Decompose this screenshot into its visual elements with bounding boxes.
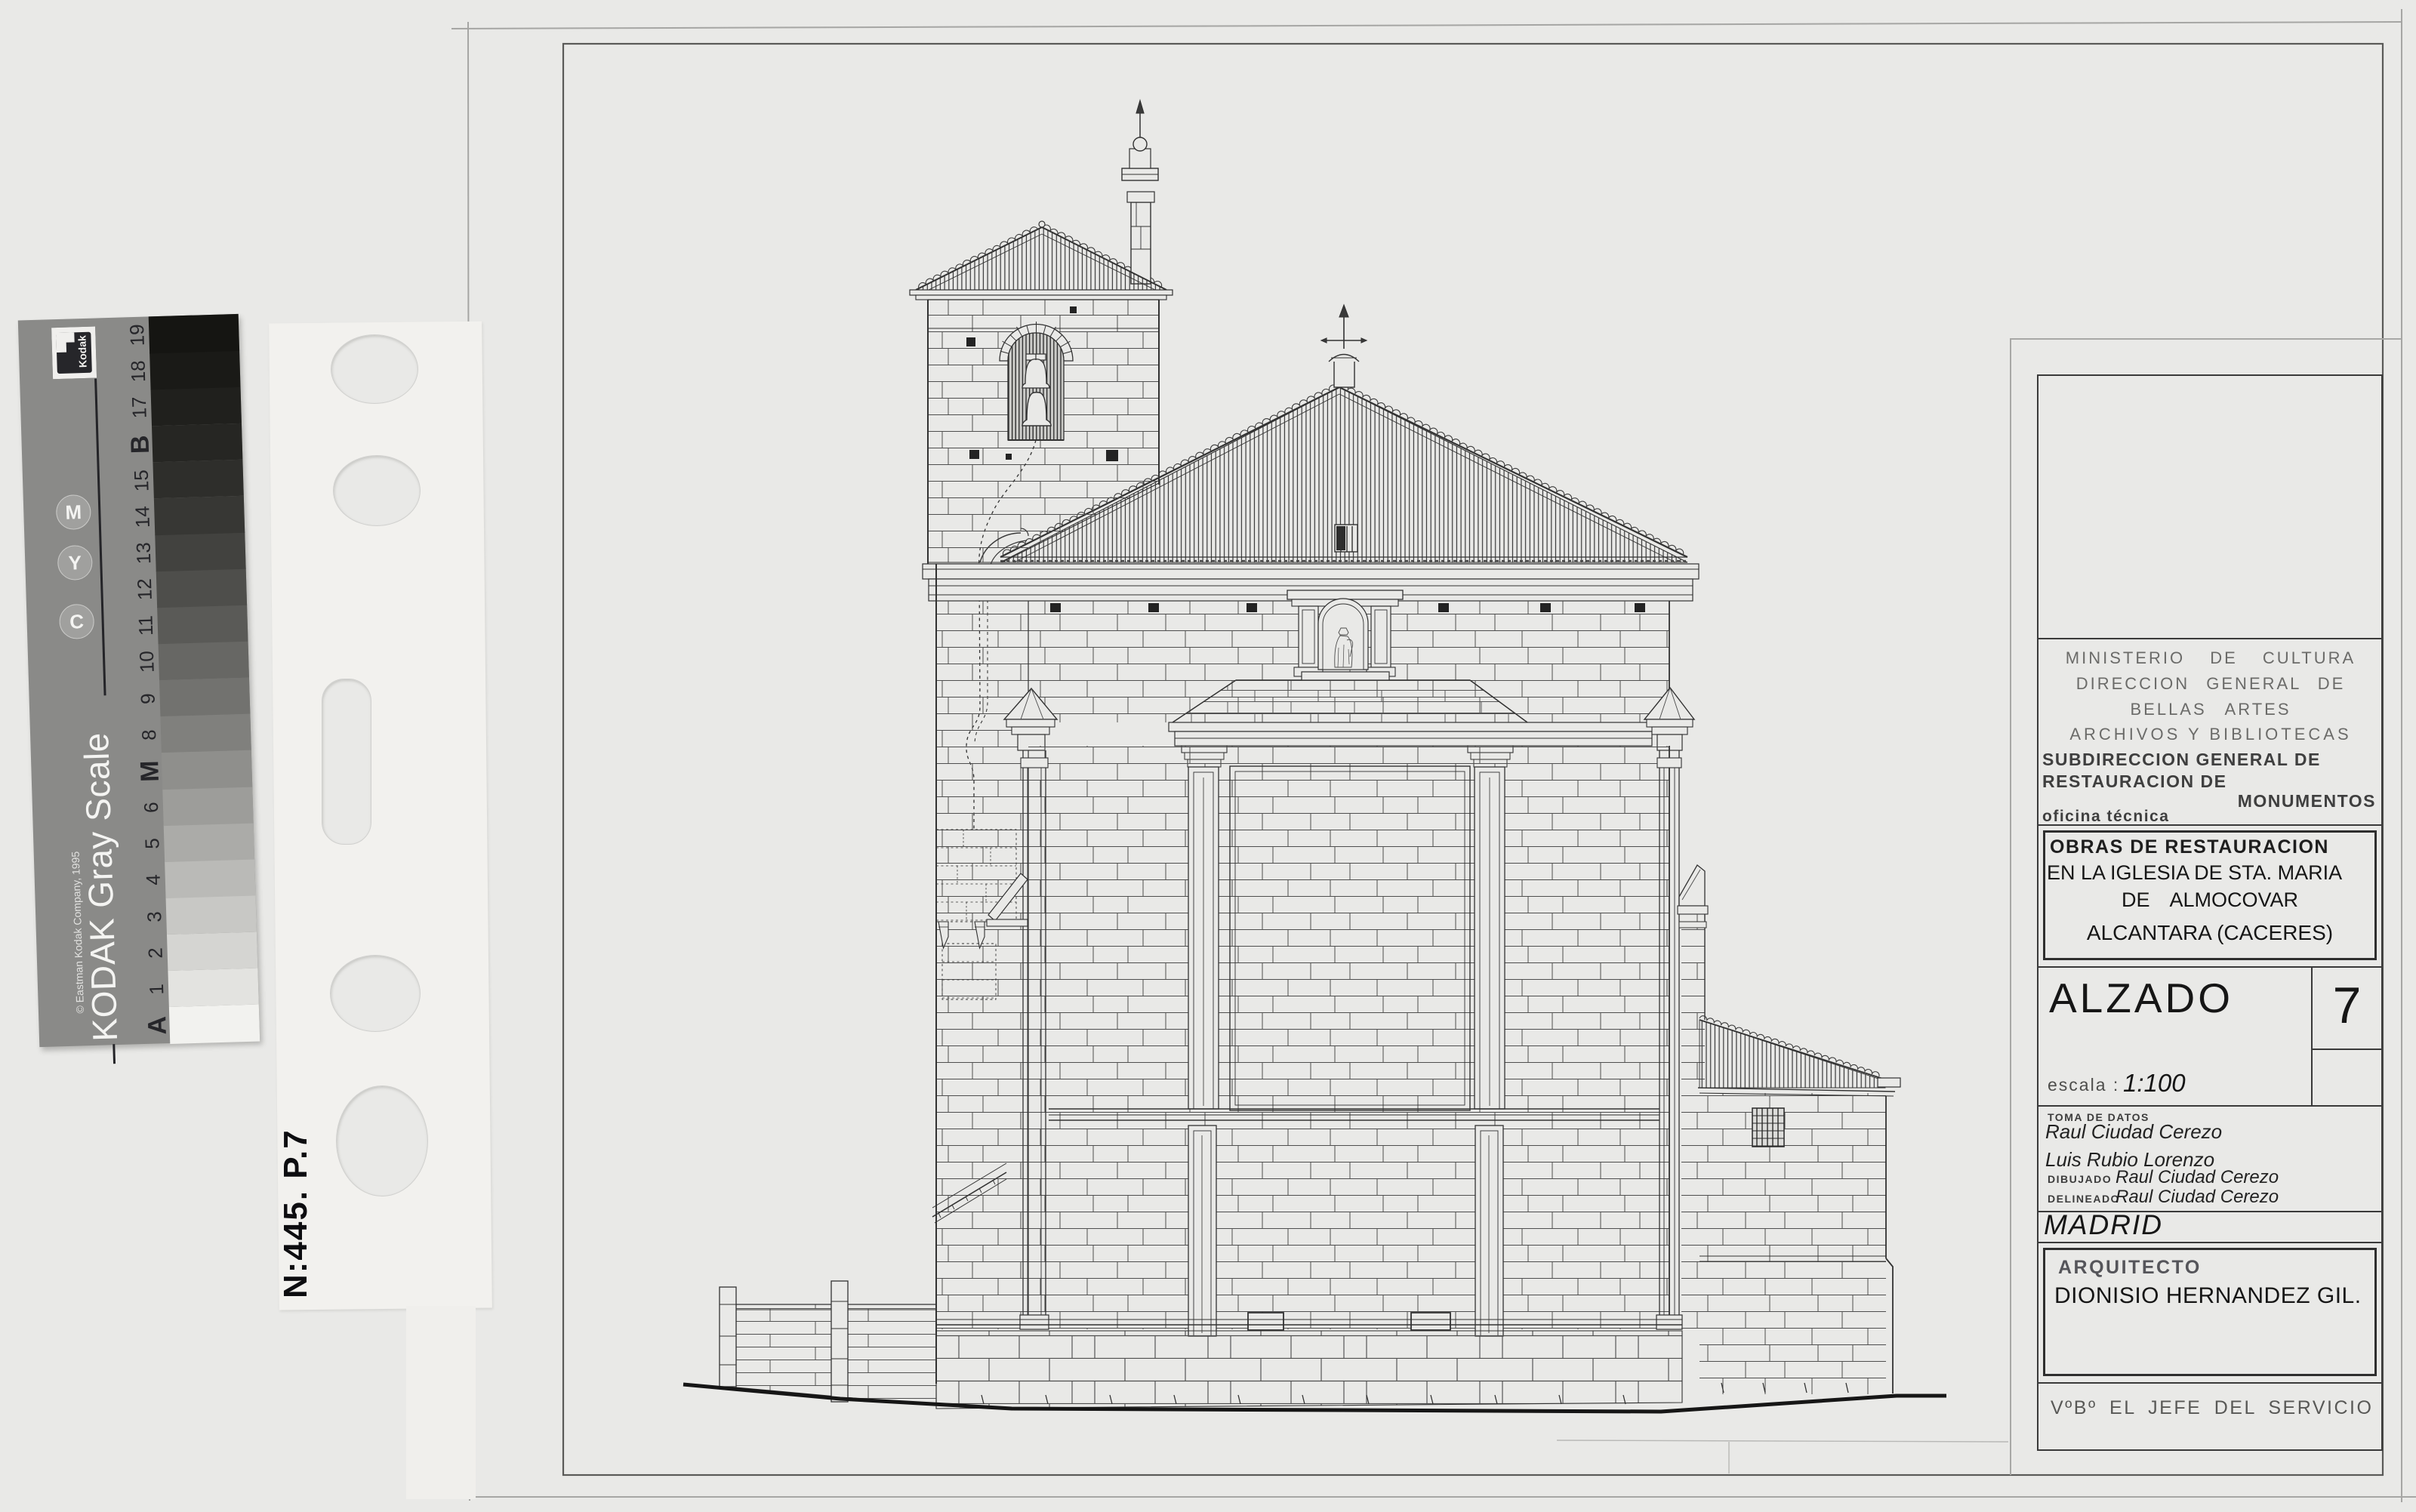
svg-text:Kodak: Kodak [75, 335, 88, 368]
